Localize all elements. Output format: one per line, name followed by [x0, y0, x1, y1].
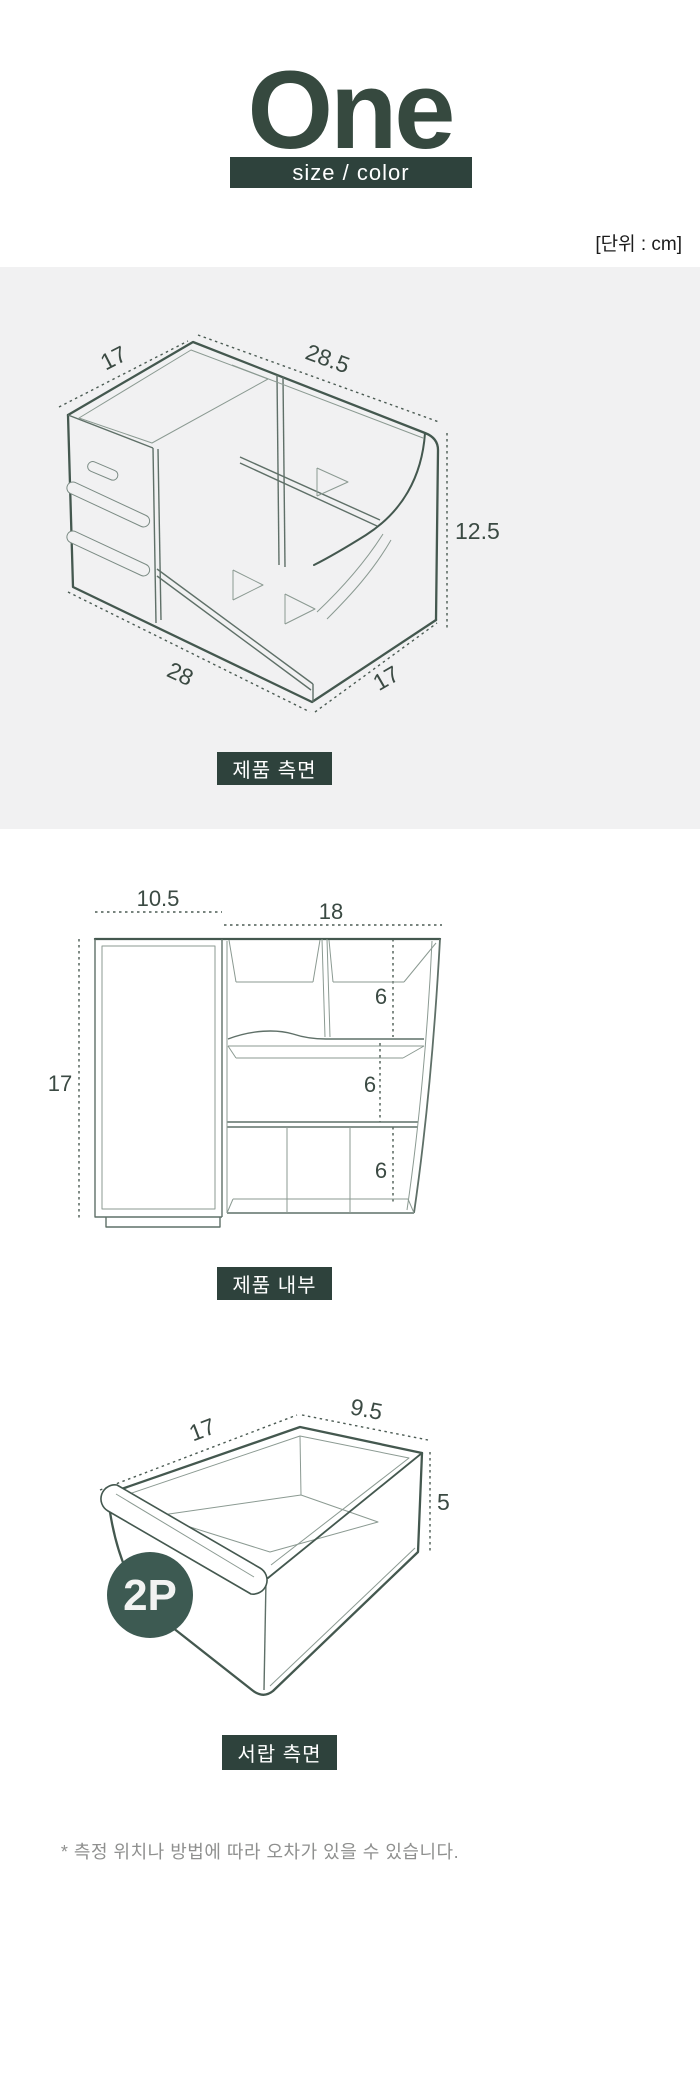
dim-left-width: 10.5: [137, 886, 180, 911]
dim-bottom-width: 28: [163, 657, 197, 691]
page-title: One: [0, 56, 700, 166]
side-dimension-labels: 17 28.5 12.5 28 17: [96, 339, 500, 696]
dim-height: 12.5: [455, 518, 500, 544]
dim-interior-height: 17: [48, 1071, 72, 1096]
interior-dimension-labels: 10.5 18 17 6 6 6: [48, 886, 387, 1183]
product-size-page: One size / color [단위 : cm]: [0, 0, 700, 2083]
drawer-view-diagram: 2P 17 9.5 5: [0, 1395, 700, 1725]
drawer-handles: [65, 460, 152, 578]
organizer-structure: [68, 375, 380, 702]
dim-top-depth: 17: [96, 340, 131, 375]
organizer-details: [79, 350, 423, 624]
dim-pocket-bottom: 6: [375, 1158, 387, 1183]
size-color-banner: size / color: [230, 157, 472, 188]
caption-drawer-side: 서랍 측면: [222, 1735, 337, 1770]
unit-note: [단위 : cm]: [595, 229, 682, 256]
side-dimension-lines: [59, 335, 447, 712]
side-view-diagram: 17 28.5 12.5 28 17: [0, 267, 700, 829]
measurement-disclaimer: * 측정 위치나 방법에 따라 오차가 있을 수 있습니다.: [0, 1838, 520, 1864]
dim-drawer-height: 5: [437, 1489, 450, 1515]
dim-bottom-depth: 17: [368, 660, 403, 695]
dim-top-width: 28.5: [302, 339, 353, 379]
caption-product-side: 제품 측면: [217, 752, 332, 785]
dim-right-width: 18: [319, 899, 343, 924]
drawer-dimension-labels: 17 9.5 5: [186, 1395, 450, 1515]
dim-pocket-top: 6: [375, 984, 387, 1009]
badge-label: 2P: [123, 1571, 177, 1620]
dim-pocket-mid: 6: [364, 1072, 376, 1097]
caption-product-interior: 제품 내부: [217, 1267, 332, 1300]
organizer-outline: [68, 342, 438, 702]
interior-view-diagram: 10.5 18 17 6 6 6: [0, 880, 700, 1240]
dim-drawer-width: 9.5: [348, 1395, 384, 1425]
quantity-badge: 2P: [107, 1552, 193, 1638]
dim-drawer-depth: 17: [186, 1413, 219, 1446]
interior-dimension-lines: [79, 912, 442, 1218]
